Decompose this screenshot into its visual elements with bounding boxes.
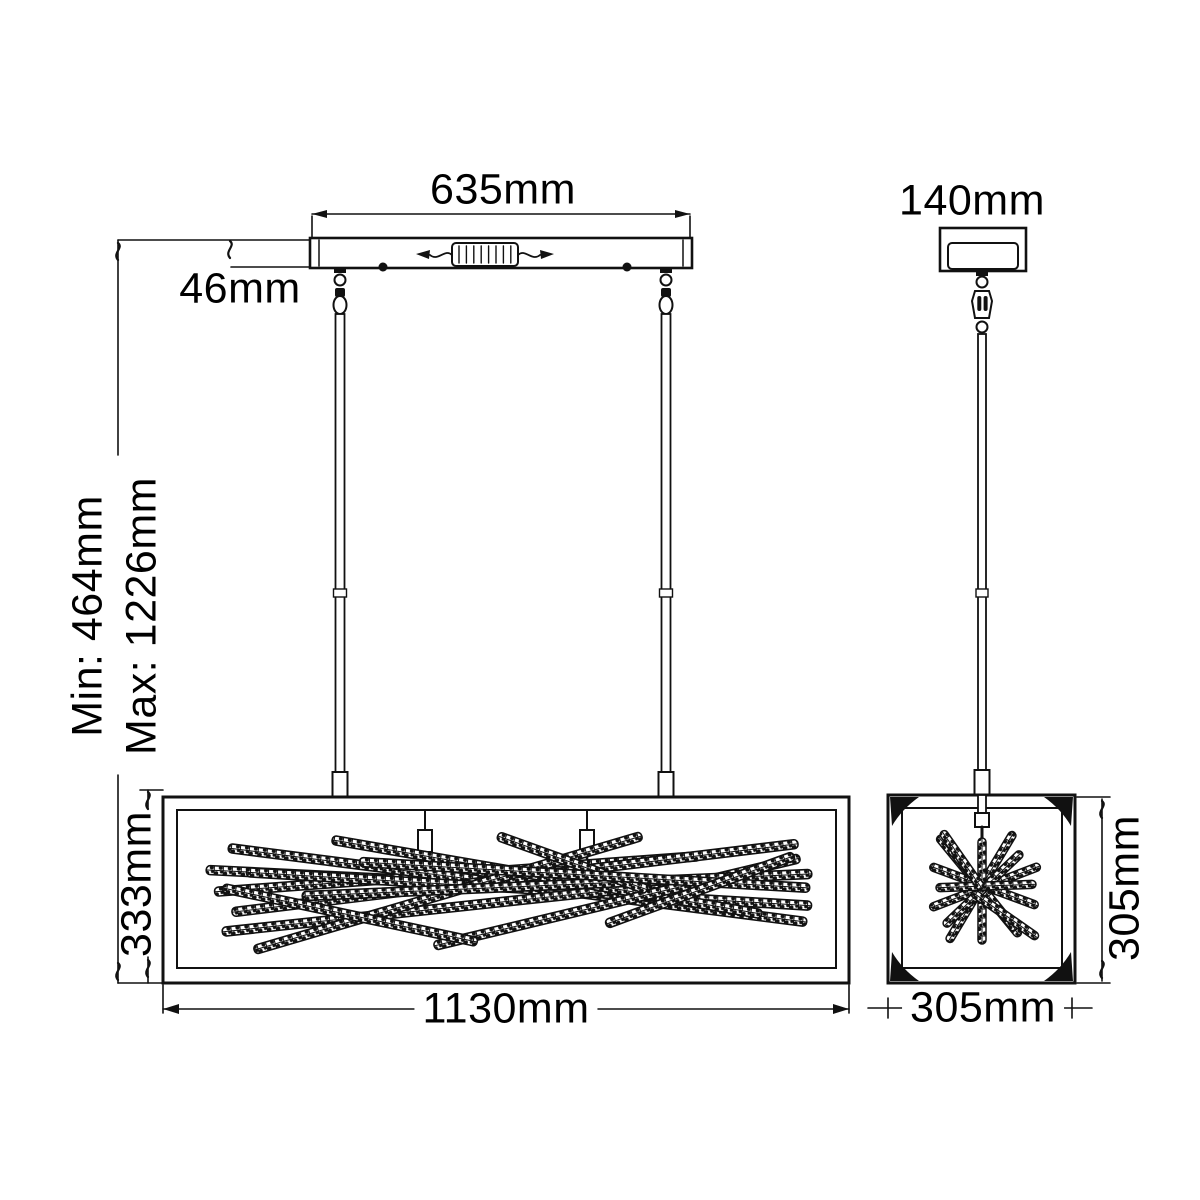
label-canopy-height: 46mm <box>179 268 300 311</box>
hanger-rod-right <box>659 268 674 797</box>
label-max-height: Max: 1226mm <box>121 477 164 755</box>
label-side-body-height: 305mm <box>1104 815 1147 961</box>
side-canopy <box>940 228 1026 271</box>
dim-canopy-width <box>312 210 690 237</box>
hanger-rod-left <box>333 268 348 797</box>
hanger-rod-side <box>972 271 992 795</box>
label-side-canopy-width: 140mm <box>899 180 1045 223</box>
label-min-height: Min: 464mm <box>67 495 110 737</box>
canopy-screw-right <box>623 263 632 272</box>
dim-canopy-height <box>228 241 310 267</box>
label-canopy-width: 635mm <box>430 169 576 212</box>
dimension-diagram: 635mm 46mm Min: 464mm Max: 1226mm 333mm … <box>0 0 1200 1200</box>
canopy-screw-left <box>379 263 388 272</box>
label-side-body-width: 305mm <box>902 987 1064 1030</box>
label-body-width-front: 1130mm <box>414 988 597 1031</box>
label-body-height-front: 333mm <box>116 811 159 957</box>
